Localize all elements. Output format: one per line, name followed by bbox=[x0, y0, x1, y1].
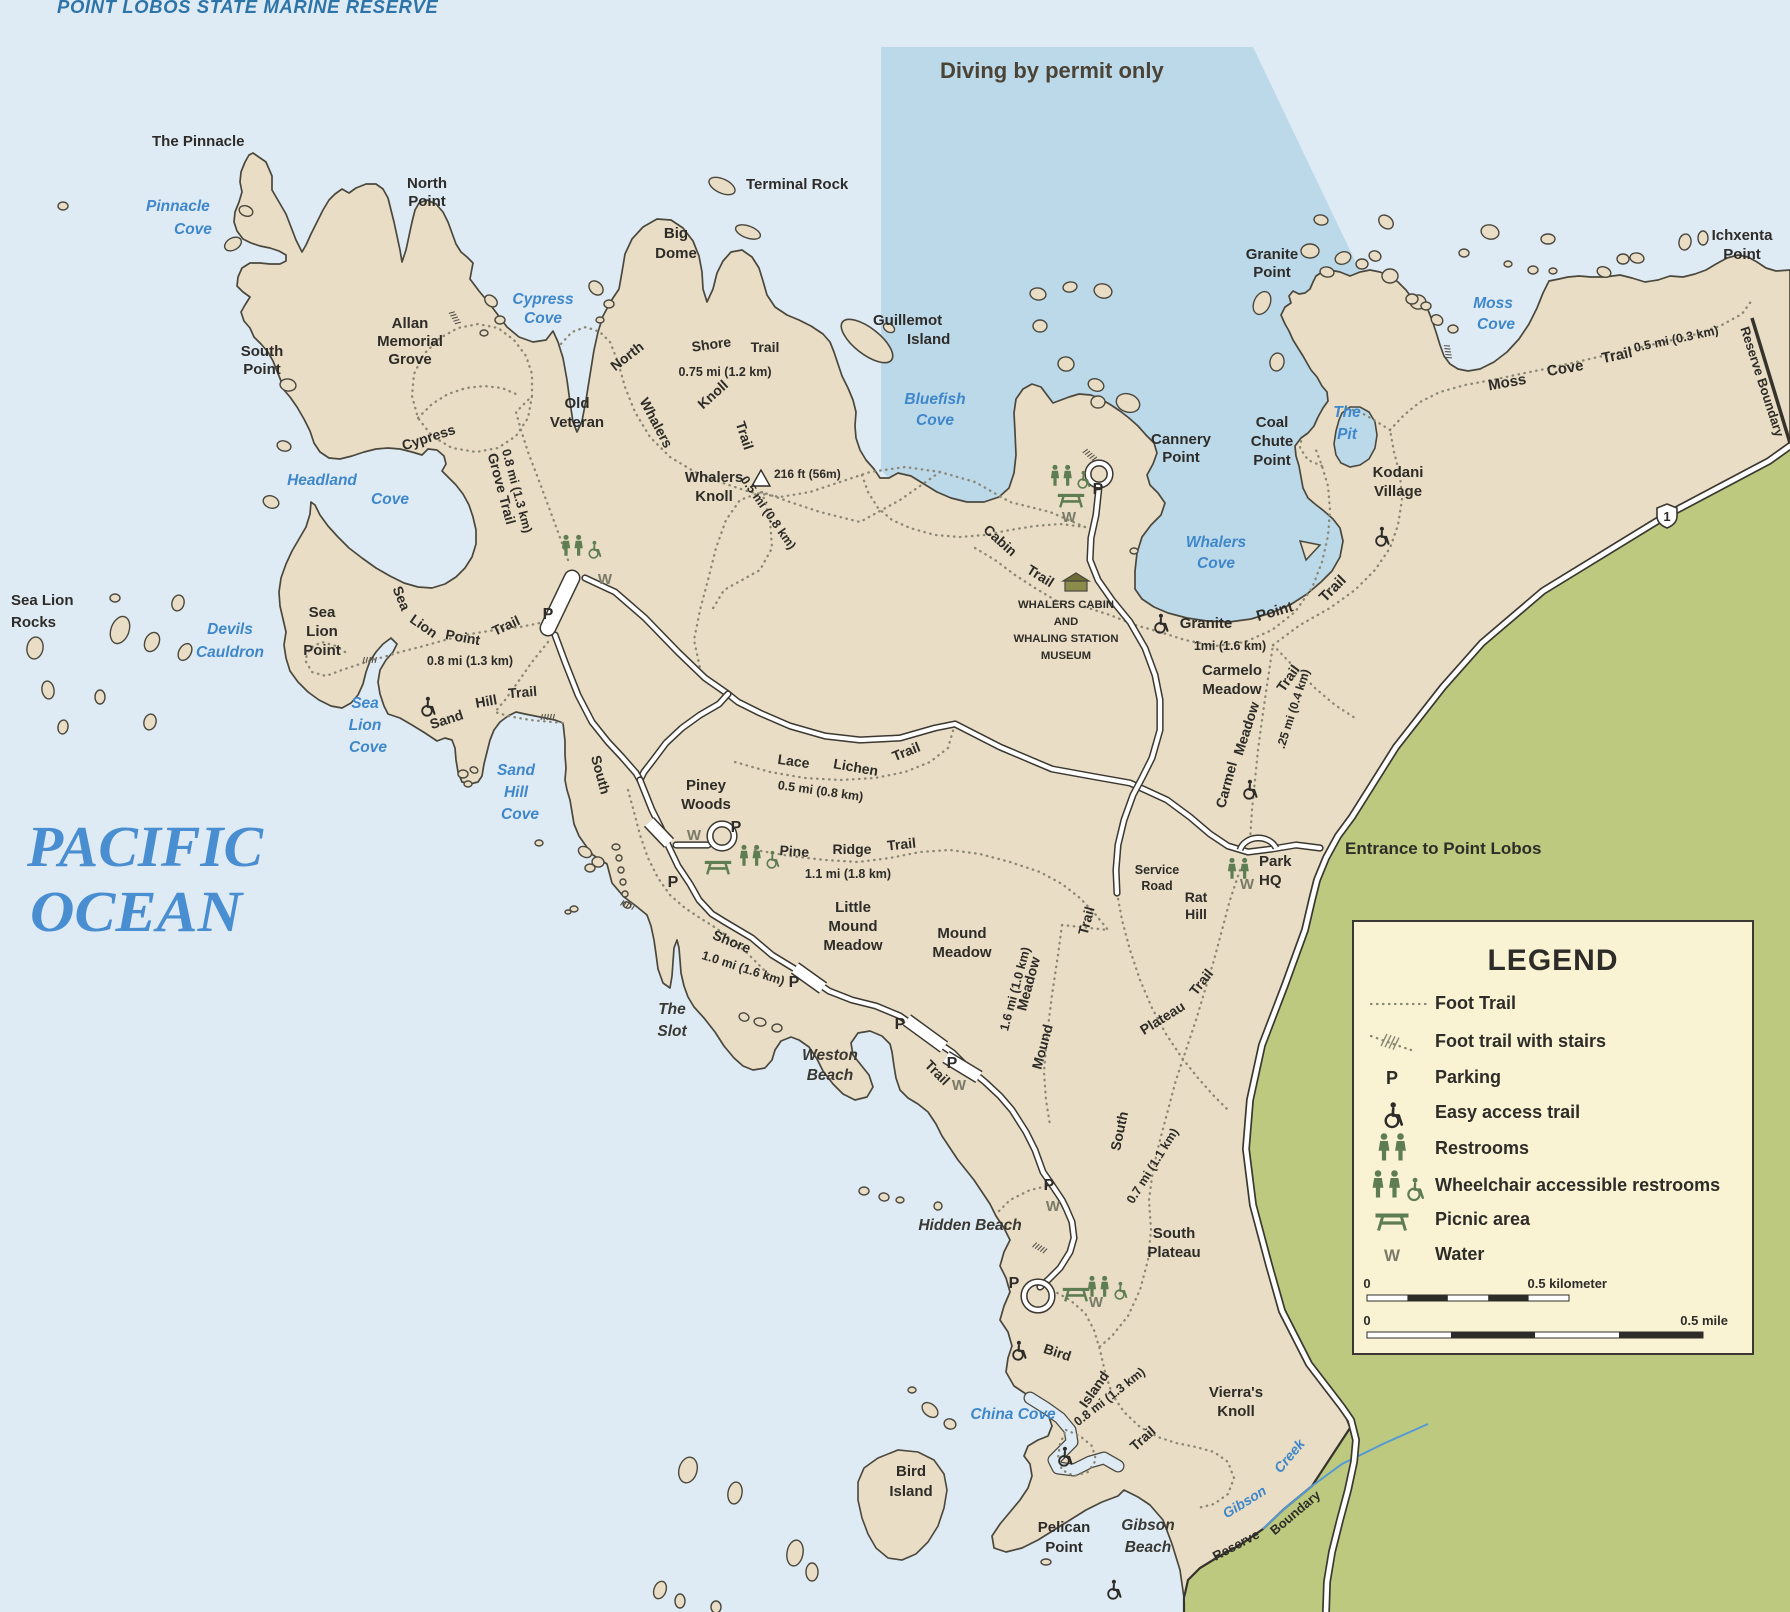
svg-text:The: The bbox=[658, 1001, 686, 1018]
svg-text:Kodani: Kodani bbox=[1373, 464, 1424, 481]
svg-text:Guillemot: Guillemot bbox=[873, 312, 942, 329]
svg-text:Grove: Grove bbox=[388, 351, 431, 368]
svg-text:P: P bbox=[1044, 1177, 1055, 1194]
svg-text:Sand: Sand bbox=[497, 762, 535, 779]
svg-text:Pelican: Pelican bbox=[1038, 1519, 1091, 1536]
svg-text:Cauldron: Cauldron bbox=[196, 644, 264, 661]
svg-text:OCEAN: OCEAN bbox=[30, 879, 244, 944]
svg-text:Big: Big bbox=[664, 225, 688, 242]
svg-text:W: W bbox=[952, 1077, 967, 1094]
svg-text:Whalers: Whalers bbox=[1186, 534, 1247, 551]
svg-text:Point: Point bbox=[243, 361, 281, 378]
svg-text:Pinnacle: Pinnacle bbox=[146, 198, 210, 215]
svg-text:Whalers: Whalers bbox=[685, 469, 743, 486]
svg-text:WHALING STATION: WHALING STATION bbox=[1013, 633, 1118, 645]
svg-text:Cove: Cove bbox=[174, 221, 212, 238]
svg-text:Plateau: Plateau bbox=[1147, 1244, 1200, 1261]
svg-text:1.1 mi (1.8 km): 1.1 mi (1.8 km) bbox=[805, 867, 891, 881]
svg-text:Old: Old bbox=[565, 395, 590, 412]
svg-text:W: W bbox=[687, 827, 702, 844]
svg-text:Mound: Mound bbox=[828, 918, 877, 935]
svg-text:Water: Water bbox=[1435, 1244, 1484, 1264]
svg-text:Restrooms: Restrooms bbox=[1435, 1138, 1529, 1158]
svg-text:South: South bbox=[241, 343, 284, 360]
svg-text:Granite: Granite bbox=[1246, 246, 1299, 263]
svg-text:Point: Point bbox=[1045, 1539, 1083, 1556]
svg-text:POINT LOBOS STATE MARINE RESER: POINT LOBOS STATE MARINE RESERVE bbox=[57, 0, 438, 17]
svg-text:The Pinnacle: The Pinnacle bbox=[152, 133, 245, 150]
svg-text:0: 0 bbox=[1363, 1313, 1370, 1328]
svg-text:Rat: Rat bbox=[1185, 889, 1208, 905]
svg-text:Little: Little bbox=[835, 899, 871, 916]
svg-text:P: P bbox=[1386, 1068, 1398, 1088]
svg-text:MUSEUM: MUSEUM bbox=[1041, 650, 1091, 662]
svg-text:Terminal Rock: Terminal Rock bbox=[746, 176, 849, 193]
svg-text:Island: Island bbox=[907, 331, 950, 348]
svg-text:0.5 mile: 0.5 mile bbox=[1680, 1313, 1728, 1328]
svg-text:WHALERS CABIN: WHALERS CABIN bbox=[1018, 599, 1114, 611]
svg-text:Knoll: Knoll bbox=[1217, 1403, 1255, 1420]
svg-text:Point: Point bbox=[408, 193, 446, 210]
svg-text:Foot Trail: Foot Trail bbox=[1435, 993, 1516, 1013]
svg-text:0.8 mi (1.3 km): 0.8 mi (1.3 km) bbox=[427, 654, 513, 668]
svg-text:Knoll: Knoll bbox=[695, 488, 733, 505]
svg-text:Beach: Beach bbox=[807, 1067, 854, 1084]
svg-text:LEGEND: LEGEND bbox=[1487, 944, 1618, 977]
svg-text:Sea: Sea bbox=[309, 604, 336, 621]
svg-text:Road: Road bbox=[1141, 879, 1172, 893]
svg-text:Hill: Hill bbox=[1185, 906, 1207, 922]
svg-text:The: The bbox=[1333, 404, 1361, 421]
svg-text:0: 0 bbox=[1363, 1276, 1370, 1291]
svg-text:Ichxenta: Ichxenta bbox=[1712, 227, 1774, 244]
svg-text:P: P bbox=[895, 1016, 906, 1033]
svg-text:Cove: Cove bbox=[916, 412, 954, 429]
svg-text:Devils: Devils bbox=[207, 621, 253, 638]
svg-text:0.5 kilometer: 0.5 kilometer bbox=[1528, 1276, 1608, 1291]
svg-text:P: P bbox=[543, 606, 554, 623]
svg-text:Point: Point bbox=[1723, 246, 1761, 263]
svg-text:Lion: Lion bbox=[349, 717, 382, 734]
svg-text:Slot: Slot bbox=[657, 1023, 687, 1040]
svg-text:Woods: Woods bbox=[681, 796, 731, 813]
svg-text:North: North bbox=[407, 175, 447, 192]
svg-text:Ridge: Ridge bbox=[833, 841, 872, 857]
svg-text:P: P bbox=[1093, 481, 1104, 498]
svg-text:Bluefish: Bluefish bbox=[904, 391, 965, 408]
svg-text:Park: Park bbox=[1259, 853, 1292, 870]
svg-text:P: P bbox=[668, 874, 679, 891]
svg-text:1: 1 bbox=[1663, 509, 1670, 524]
svg-text:P: P bbox=[731, 819, 742, 836]
svg-text:Coal: Coal bbox=[1256, 414, 1289, 431]
svg-text:China Cove: China Cove bbox=[970, 1406, 1056, 1423]
svg-text:Cove: Cove bbox=[524, 310, 562, 327]
svg-text:HQ: HQ bbox=[1259, 872, 1282, 889]
svg-text:P: P bbox=[947, 1055, 958, 1072]
svg-text:Carmelo: Carmelo bbox=[1202, 662, 1262, 679]
svg-text:P: P bbox=[789, 974, 800, 991]
svg-text:Moss: Moss bbox=[1473, 295, 1513, 312]
svg-text:Cove: Cove bbox=[501, 806, 539, 823]
svg-text:Cypress: Cypress bbox=[512, 291, 574, 308]
svg-text:Sea: Sea bbox=[351, 695, 379, 712]
svg-text:Trail: Trail bbox=[508, 683, 538, 701]
svg-text:Chute: Chute bbox=[1251, 433, 1294, 450]
svg-text:Cove: Cove bbox=[349, 739, 387, 756]
svg-text:Bird: Bird bbox=[896, 1463, 926, 1480]
svg-text:Trail: Trail bbox=[886, 835, 916, 854]
svg-text:Parking: Parking bbox=[1435, 1067, 1501, 1087]
svg-text:South: South bbox=[1153, 1225, 1196, 1242]
svg-text:Easy access trail: Easy access trail bbox=[1435, 1102, 1580, 1122]
svg-text:Village: Village bbox=[1374, 483, 1422, 500]
svg-text:0.75 mi (1.2 km): 0.75 mi (1.2 km) bbox=[678, 365, 771, 379]
svg-text:Dome: Dome bbox=[655, 245, 697, 262]
svg-text:Point: Point bbox=[1253, 264, 1291, 281]
svg-text:P: P bbox=[1009, 1275, 1020, 1292]
svg-text:Hill: Hill bbox=[504, 784, 529, 801]
svg-text:W: W bbox=[598, 571, 613, 588]
svg-text:Service: Service bbox=[1135, 863, 1180, 877]
svg-text:216 ft (56m): 216 ft (56m) bbox=[774, 467, 841, 481]
svg-text:Weston: Weston bbox=[802, 1047, 858, 1064]
svg-text:Wheelchair accessible restroom: Wheelchair accessible restrooms bbox=[1435, 1175, 1720, 1195]
svg-text:Granite: Granite bbox=[1180, 615, 1233, 632]
svg-text:Beach: Beach bbox=[1125, 1539, 1172, 1556]
svg-text:Cannery: Cannery bbox=[1151, 431, 1212, 448]
svg-text:Veteran: Veteran bbox=[550, 414, 604, 431]
svg-text:Point: Point bbox=[303, 642, 341, 659]
svg-text:Point: Point bbox=[1253, 452, 1291, 469]
svg-text:Memorial: Memorial bbox=[377, 333, 443, 350]
svg-text:Pine: Pine bbox=[779, 842, 810, 860]
svg-text:Pit: Pit bbox=[1337, 426, 1358, 443]
svg-text:Meadow: Meadow bbox=[1202, 681, 1262, 698]
svg-text:Entrance to Point Lobos: Entrance to Point Lobos bbox=[1345, 839, 1541, 858]
svg-text:W: W bbox=[1384, 1246, 1401, 1265]
svg-text:W: W bbox=[1240, 876, 1255, 893]
svg-text:Meadow: Meadow bbox=[932, 944, 992, 961]
svg-text:PACIFIC: PACIFIC bbox=[26, 814, 264, 879]
svg-text:Cove: Cove bbox=[371, 491, 409, 508]
svg-text:Headland: Headland bbox=[287, 472, 357, 489]
svg-text:Diving by permit only: Diving by permit only bbox=[940, 58, 1164, 83]
svg-text:Vierra's: Vierra's bbox=[1209, 1384, 1263, 1401]
svg-text:Island: Island bbox=[889, 1483, 932, 1500]
svg-text:1mi (1.6 km): 1mi (1.6 km) bbox=[1194, 639, 1266, 653]
svg-text:Picnic area: Picnic area bbox=[1435, 1209, 1531, 1229]
svg-text:W: W bbox=[1046, 1198, 1061, 1215]
svg-text:AND: AND bbox=[1054, 616, 1078, 628]
svg-text:Sea Lion: Sea Lion bbox=[11, 592, 74, 609]
svg-text:Mound: Mound bbox=[937, 925, 986, 942]
svg-text:Cove: Cove bbox=[1197, 555, 1235, 572]
svg-text:Allan: Allan bbox=[392, 315, 429, 332]
svg-text:Gibson: Gibson bbox=[1121, 1517, 1174, 1534]
svg-text:Lion: Lion bbox=[306, 623, 338, 640]
svg-text:Meadow: Meadow bbox=[823, 937, 883, 954]
svg-text:Foot trail with stairs: Foot trail with stairs bbox=[1435, 1031, 1606, 1051]
svg-text:Point: Point bbox=[1162, 449, 1200, 466]
svg-text:Hidden Beach: Hidden Beach bbox=[918, 1217, 1021, 1234]
svg-text:Trail: Trail bbox=[751, 339, 780, 355]
svg-text:Cove: Cove bbox=[1477, 316, 1515, 333]
svg-text:W: W bbox=[1062, 509, 1077, 526]
svg-text:Piney: Piney bbox=[686, 777, 727, 794]
svg-text:Rocks: Rocks bbox=[11, 614, 56, 631]
